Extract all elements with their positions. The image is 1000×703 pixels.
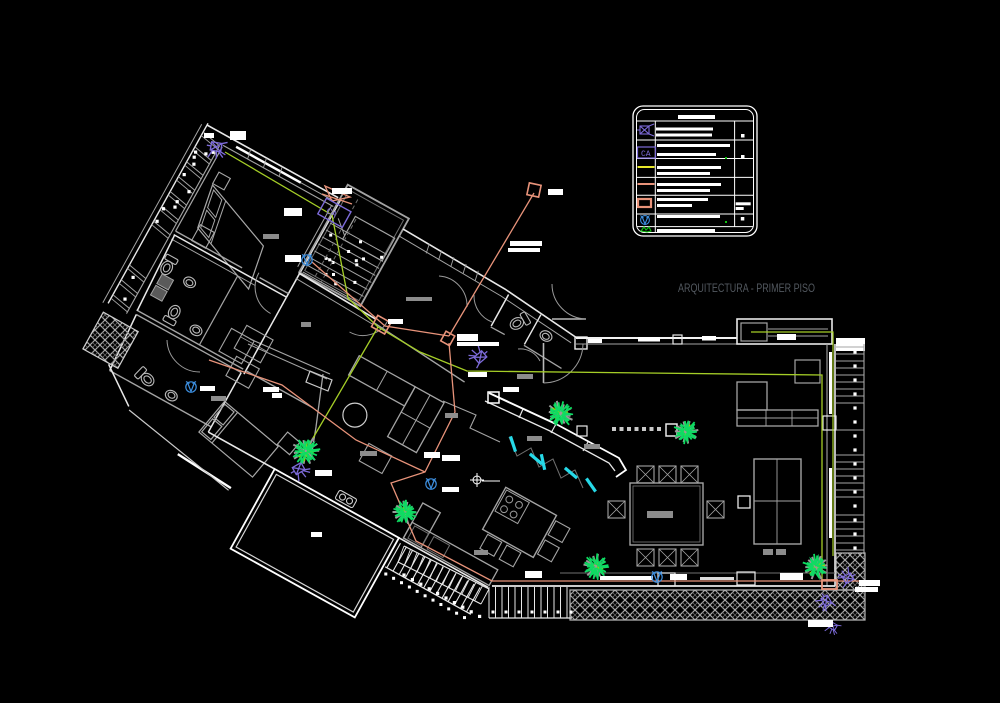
svg-text:CA: CA [641,150,651,159]
svg-text:ARQUITECTURA - PRIMER PISO: ARQUITECTURA - PRIMER PISO [678,283,815,295]
